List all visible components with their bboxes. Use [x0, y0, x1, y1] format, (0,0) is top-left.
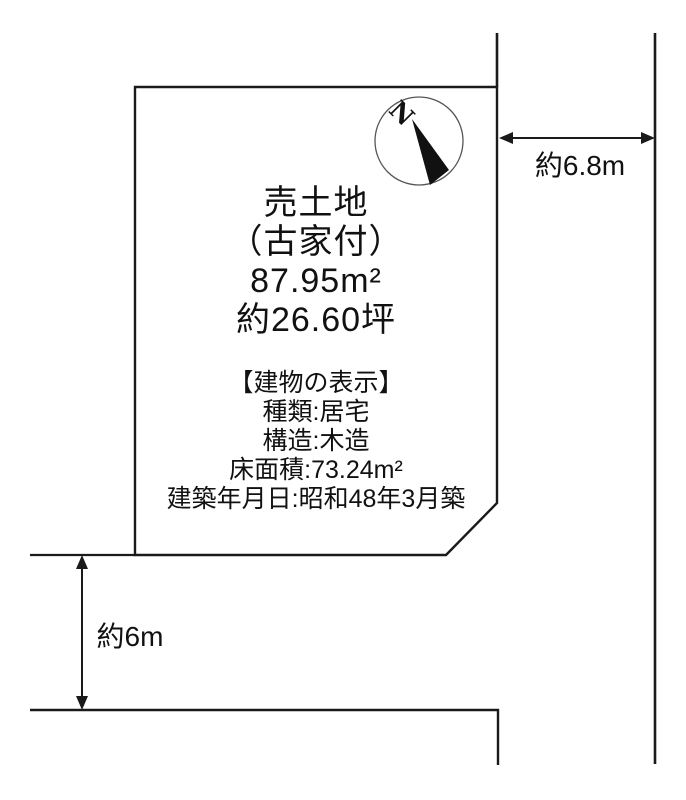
site-plan: N 売土地 （古家付） 87.95m² 約26.60坪 【建物の表示】 種類:居… [0, 0, 686, 800]
building-type: 種類:居宅 [135, 398, 497, 427]
building-floor-area: 床面積:73.24m² [135, 456, 497, 485]
parcel-area-sqm: 87.95m² [135, 262, 497, 301]
parcel-info-block: 売土地 （古家付） 87.95m² 約26.60坪 [135, 184, 497, 340]
bottom-road-lower-edge [30, 710, 498, 765]
building-info-block: 【建物の表示】 種類:居宅 構造:木造 床面積:73.24m² 建築年月日:昭和… [135, 369, 497, 514]
arrowhead-right-icon [641, 132, 655, 144]
parcel-title: 売土地 [135, 184, 497, 223]
building-info-header: 【建物の表示】 [135, 369, 497, 398]
arrowhead-left-icon [499, 132, 513, 144]
compass-needle-icon [412, 119, 449, 185]
arrowhead-up-icon [76, 555, 88, 569]
parcel-area-tsubo: 約26.60坪 [135, 301, 497, 340]
arrowhead-down-icon [76, 696, 88, 710]
bottom-road-width-label: 約6m [90, 622, 170, 652]
building-structure: 構造:木造 [135, 427, 497, 456]
right-road-width-label: 約6.8m [505, 150, 655, 182]
parcel-subtitle: （古家付） [135, 223, 497, 262]
right-road-dimension-arrow [499, 132, 655, 144]
bottom-road-dimension-arrow [76, 555, 88, 710]
building-built-date: 建築年月日:昭和48年3月築 [135, 485, 497, 514]
north-compass-icon: N [375, 95, 463, 185]
